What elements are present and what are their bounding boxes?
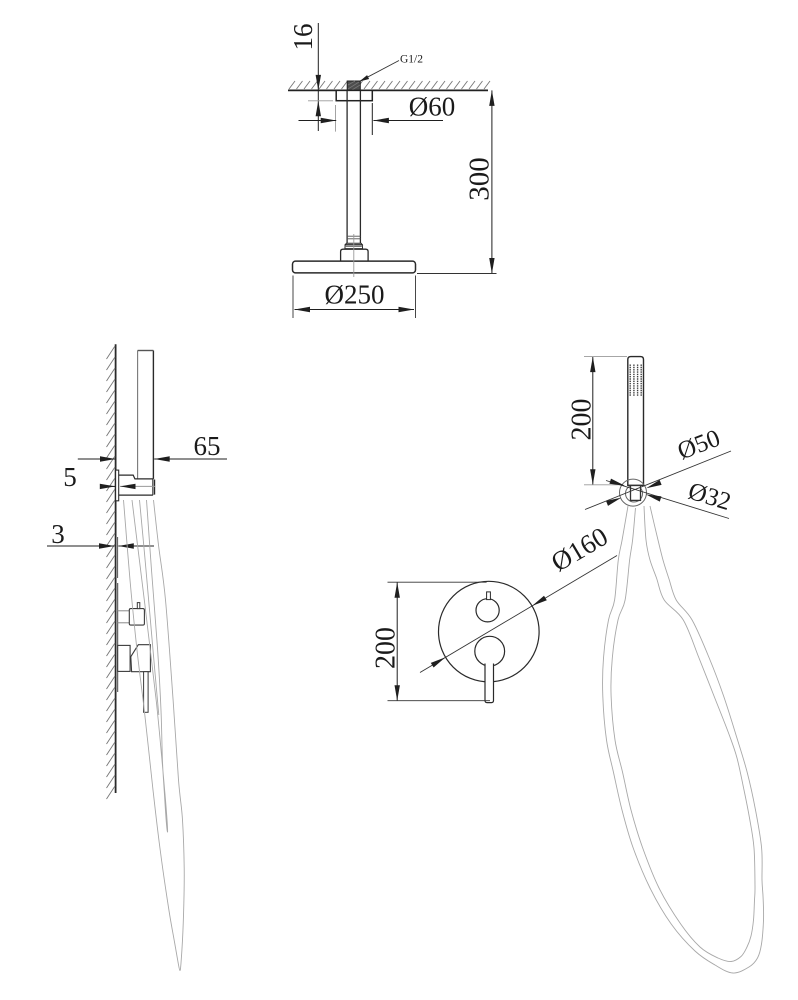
svg-text:Ø160: Ø160 — [546, 521, 613, 577]
svg-text:Ø60: Ø60 — [409, 92, 456, 122]
svg-text:200: 200 — [371, 627, 402, 669]
svg-text:200: 200 — [567, 399, 598, 441]
svg-text:3: 3 — [51, 519, 65, 549]
svg-text:16: 16 — [288, 24, 318, 51]
svg-text:G1/2: G1/2 — [400, 54, 423, 66]
svg-text:300: 300 — [464, 157, 496, 201]
svg-text:65: 65 — [194, 431, 221, 461]
svg-text:5: 5 — [63, 462, 77, 492]
svg-text:Ø32: Ø32 — [685, 478, 734, 516]
svg-text:Ø250: Ø250 — [325, 280, 385, 310]
svg-text:Ø50: Ø50 — [674, 425, 724, 466]
